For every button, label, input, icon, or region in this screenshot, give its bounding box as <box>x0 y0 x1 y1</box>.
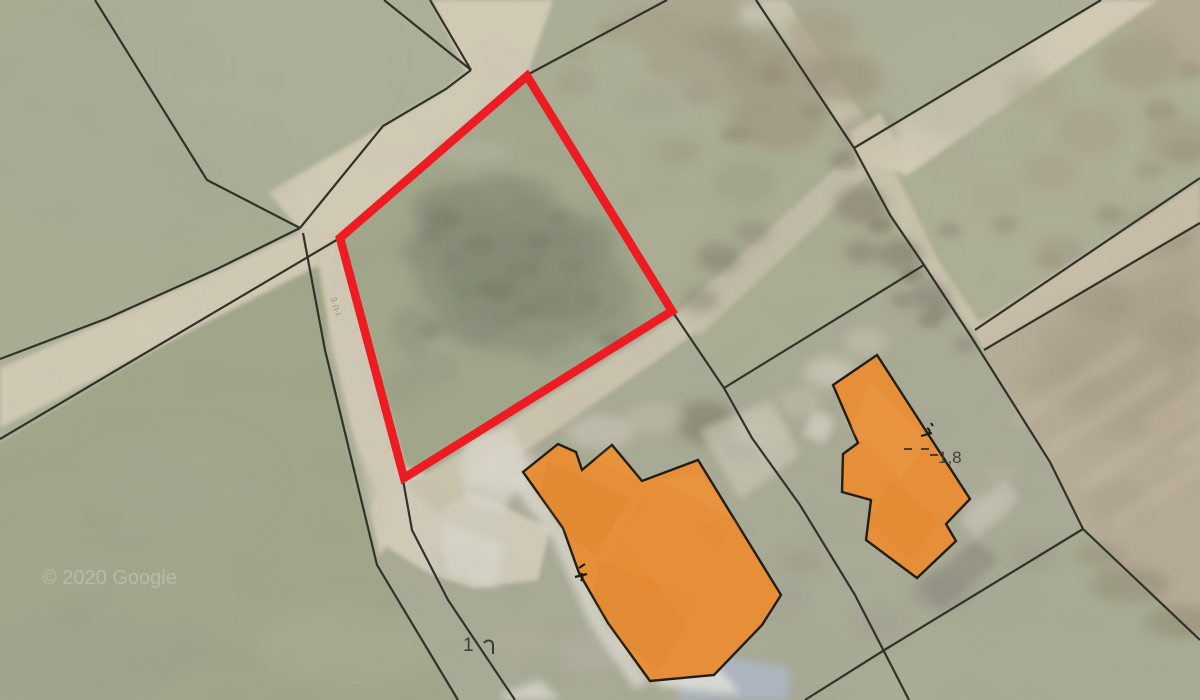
svg-text:1,8: 1,8 <box>938 448 962 467</box>
svg-text:1: 1 <box>463 635 474 656</box>
svg-text:© 2020 Google: © 2020 Google <box>42 567 177 589</box>
